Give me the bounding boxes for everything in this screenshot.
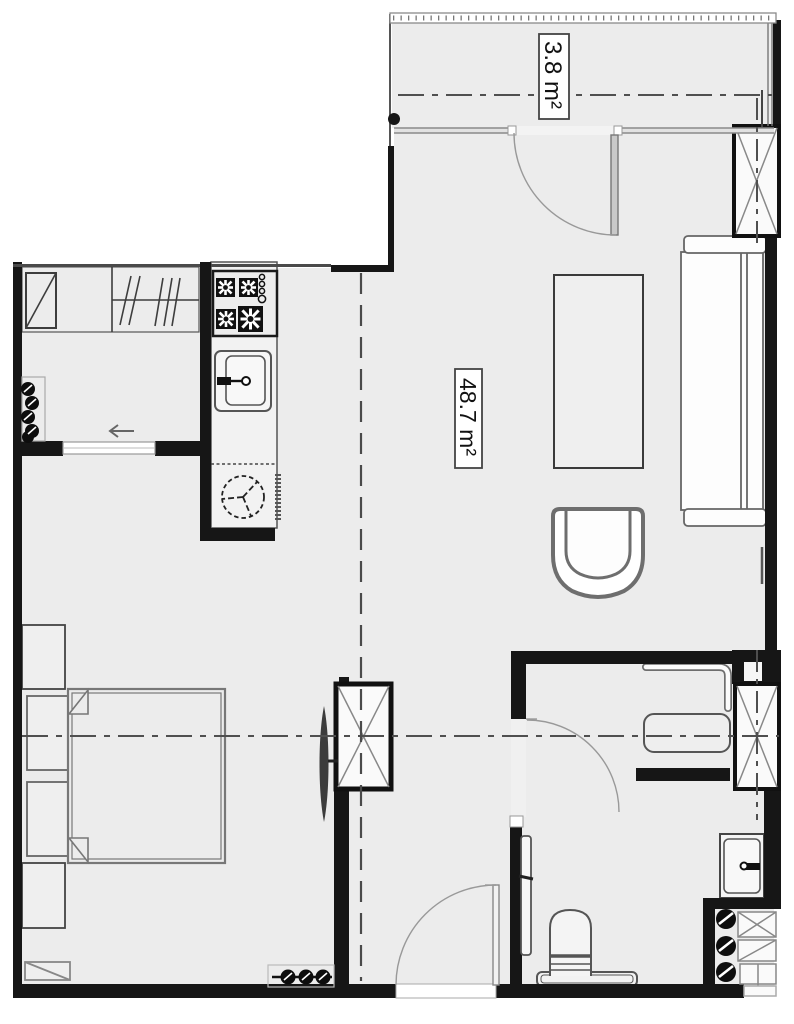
svg-text:3.8 m²: 3.8 m² [539, 41, 566, 109]
svg-text:48.7 m²: 48.7 m² [455, 378, 481, 456]
